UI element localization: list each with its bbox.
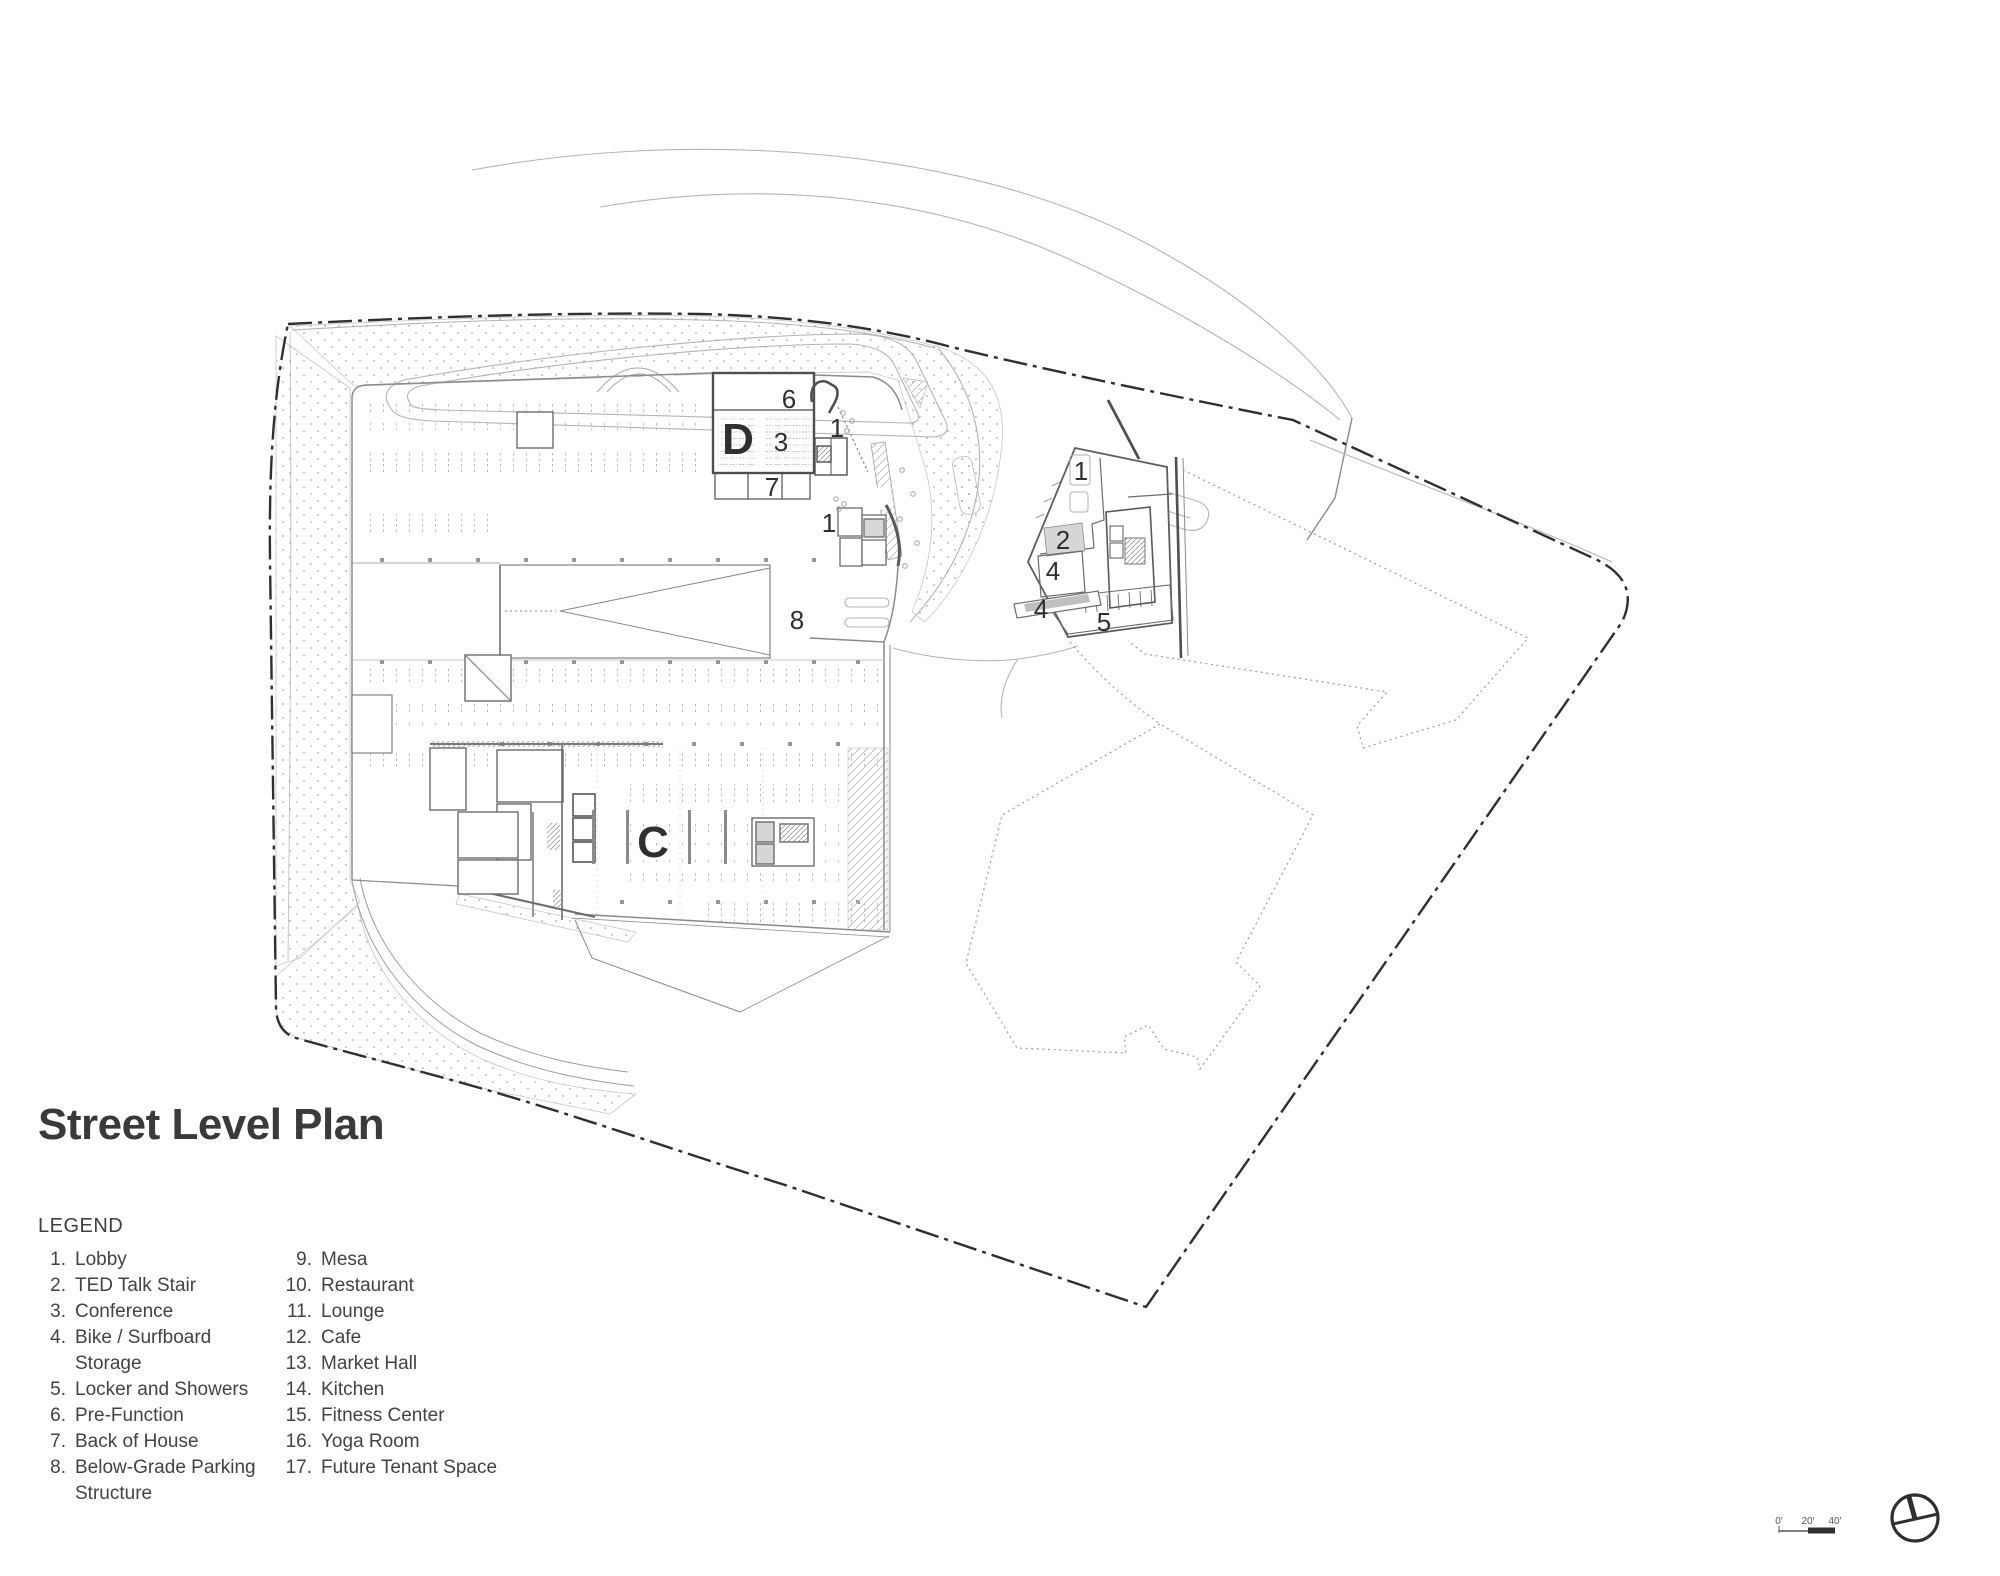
hatch-edge-band (848, 748, 888, 930)
future-pad-south (966, 724, 1313, 1069)
legend-item-number: 5. (38, 1377, 66, 1403)
sheet-title: Street Level Plan (38, 1100, 384, 1150)
legend-item-number: 11. (276, 1299, 312, 1325)
legend-item-bike-surfboard-storage: 4. Bike / Surfboard (38, 1325, 276, 1351)
legend-item-label: Back of House (75, 1429, 199, 1455)
legend-item-kitchen: 14. Kitchen (276, 1377, 497, 1403)
legend-item-number: 4. (38, 1325, 66, 1351)
stipple-southwest-wedge (276, 906, 636, 1114)
legend-item-bike-surfboard-storage-line2: Storage (38, 1351, 276, 1377)
left-edge-room (352, 695, 392, 753)
legend-item-label: Market Hall (321, 1351, 417, 1377)
legend-item-number: 13. (276, 1351, 312, 1377)
annotation-4-storage: 4 (1046, 556, 1060, 586)
building-d (713, 373, 919, 568)
legend-item-market-hall: 13. Market Hall (276, 1351, 497, 1377)
annotation-1-entry: 1 (830, 413, 844, 443)
legend-item-number: 16. (276, 1429, 312, 1455)
annotation-3: 3 (774, 427, 788, 457)
legend-item-label: Conference (75, 1299, 173, 1325)
legend-item-conference: 3. Conference (38, 1299, 276, 1325)
legend-item-label: Fitness Center (321, 1403, 445, 1429)
legend: LEGEND 1. Lobby 2. TED Talk Stair 3. Con… (38, 1218, 497, 1507)
entry-canopy-hook (811, 381, 837, 413)
future-pad-north (1128, 470, 1528, 748)
annotation-5: 5 (1097, 607, 1111, 637)
site-wall-spine (1176, 457, 1181, 658)
legend-item-label: Yoga Room (321, 1429, 420, 1455)
stair-elevator-core-east (752, 818, 814, 866)
site-wall-spine-2 (1183, 458, 1188, 656)
legend-item-lounge: 11. Lounge (276, 1299, 497, 1325)
legend-column-2: 9. Mesa 10. Restaurant 11. Lounge 12. Ca… (276, 1247, 497, 1507)
legend-item-locker-and-showers: 5. Locker and Showers (38, 1377, 276, 1403)
legend-item-number: 15. (276, 1403, 312, 1429)
crosswalk-pill-2 (845, 618, 889, 627)
legend-item-lobby: 1. Lobby (38, 1247, 276, 1273)
legend-item-number: 7. (38, 1429, 66, 1455)
legend-item-number: 17. (276, 1455, 312, 1481)
legend-item-label: TED Talk Stair (75, 1273, 196, 1299)
legend-item-number: 1. (38, 1247, 66, 1273)
legend-item-number: 8. (38, 1455, 66, 1481)
scale-label-0: 0' (1775, 1516, 1783, 1527)
legend-item-number: 6. (38, 1403, 66, 1429)
future-pad-connector (1070, 642, 1160, 724)
stipple-left-band (276, 336, 360, 966)
canopy-flag (1108, 400, 1139, 459)
legend-item-number (38, 1351, 66, 1377)
legend-item-fitness-center: 15. Fitness Center (276, 1403, 497, 1429)
legend-item-number: 9. (276, 1247, 312, 1273)
annotation-6: 6 (782, 384, 796, 414)
legend-item-label: Mesa (321, 1247, 367, 1273)
scale-bar: 0' 20' 40' (1775, 1516, 1841, 1534)
stair-elevator-core-west (573, 794, 595, 862)
legend-item-cafe: 12. Cafe (276, 1325, 497, 1351)
legend-item-ted-talk-stair: 2. TED Talk Stair (38, 1273, 276, 1299)
legend-item-back-of-house: 7. Back of House (38, 1429, 276, 1455)
legend-item-future-tenant-space: 17. Future Tenant Space (276, 1455, 497, 1481)
legend-item-number: 12. (276, 1325, 312, 1351)
legend-item-label: Restaurant (321, 1273, 414, 1299)
legend-item-label: Lobby (75, 1247, 127, 1273)
lobby-rooms-south (838, 508, 886, 566)
legend-item-label: Bike / Surfboard (75, 1325, 211, 1351)
legend-item-label: Locker and Showers (75, 1377, 248, 1403)
annotation-8: 8 (790, 605, 804, 635)
back-of-house-band (715, 473, 810, 499)
court-curb-2 (893, 646, 1078, 661)
legend-item-label: Lounge (321, 1299, 384, 1325)
escalator-strip-gap (876, 486, 893, 510)
stipple-south-strip (456, 894, 636, 942)
legend-item-label: Storage (75, 1351, 142, 1377)
annotation-7: 7 (765, 472, 779, 502)
architectural-sheet: { "title": "Street Level Plan", "legend"… (0, 0, 2000, 1576)
annotation-2: 2 (1056, 525, 1070, 555)
legend-item-label: Cafe (321, 1325, 361, 1351)
legend-item-label: Below-Grade Parking (75, 1455, 256, 1481)
legend-item-label: Pre-Function (75, 1403, 184, 1429)
building-label-d: D (722, 415, 754, 464)
legend-item-pre-function: 6. Pre-Function (38, 1403, 276, 1429)
legend-item-below-grade-parking: 8. Below-Grade Parking (38, 1455, 276, 1481)
annotation-4-bar: 4 (1034, 594, 1048, 624)
annotation-1-east: 1 (1074, 456, 1088, 486)
legend-item-mesa: 9. Mesa (276, 1247, 497, 1273)
legend-item-number: 2. (38, 1273, 66, 1299)
legend-item-number (38, 1481, 66, 1507)
annotation-1-south: 1 (822, 508, 836, 538)
ramp (500, 565, 770, 658)
legend-item-number: 14. (276, 1377, 312, 1403)
scale-label-20: 20' (1801, 1516, 1814, 1527)
road-edge-southeast (1310, 440, 1612, 562)
legend-item-label: Kitchen (321, 1377, 384, 1403)
scale-label-40: 40' (1828, 1516, 1841, 1527)
crosswalk-pill-1 (845, 598, 889, 607)
legend-item-yoga-room: 16. Yoga Room (276, 1429, 497, 1455)
court-curb-3 (1001, 659, 1018, 718)
legend-item-number: 3. (38, 1299, 66, 1325)
legend-item-restaurant: 10. Restaurant (276, 1273, 497, 1299)
legend-item-label: Future Tenant Space (321, 1455, 497, 1481)
small-room-upper (517, 412, 553, 448)
building-label-c: C (637, 818, 669, 867)
legend-item-number: 10. (276, 1273, 312, 1299)
d-core (815, 438, 847, 475)
legend-heading: LEGEND (38, 1218, 497, 1234)
north-arrow-icon (1892, 1495, 1938, 1541)
legend-item-below-grade-parking-line2: Structure (38, 1481, 276, 1507)
east-core (1106, 507, 1155, 608)
legend-column-1: 1. Lobby 2. TED Talk Stair 3. Conference… (38, 1247, 276, 1507)
legend-item-label: Structure (75, 1481, 152, 1507)
